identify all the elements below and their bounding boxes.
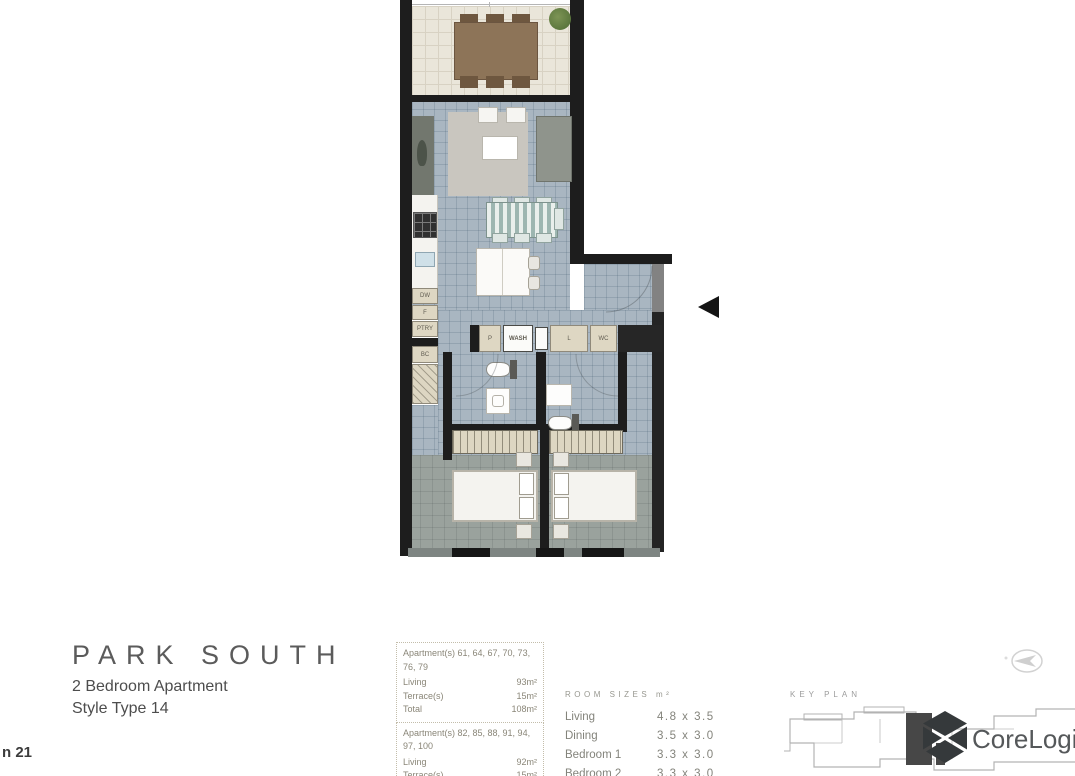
apartment-numbers: Apartment(s) 61, 64, 67, 70, 73, 76, 79 [403,647,537,674]
room-size-row: Bedroom 2 3.3 x 3.0 [565,765,743,776]
bathroom2-door-arc [576,354,618,396]
floor-plan: DW F PTRY BC P WASH L WC [0,0,1075,565]
room-dimensions: 3.3 x 3.0 [657,746,715,765]
info-row: Living 92m² [403,756,537,770]
info-label: Total [403,703,422,717]
room-sizes-heading: ROOM SIZES m² [565,690,743,699]
corelogic-logo-icon [920,710,970,766]
room-dimensions: 3.3 x 3.0 [657,765,715,776]
project-title: PARK SOUTH [72,640,346,671]
entry-arrow-icon [698,296,719,318]
apartment-info-block-2: Apartment(s) 82, 85, 88, 91, 94, 97, 100… [396,722,544,776]
info-value: 15m² [516,690,537,704]
room-dimensions: 4.8 x 3.5 [657,708,715,727]
info-row: Terrace(s) 15m² [403,769,537,776]
room-label: Dining [565,727,657,746]
room-sizes-table: ROOM SIZES m² Living 4.8 x 3.5 Dining 3.… [565,690,743,776]
bathroom1-door-arc [456,354,498,396]
room-label: Living [565,708,657,727]
apartment-info-column: Apartment(s) 61, 64, 67, 70, 73, 76, 79 … [396,642,544,776]
info-label: Terrace(s) [403,690,444,704]
info-row: Living 93m² [403,676,537,690]
door-swing-arcs [400,0,700,560]
compass-icon [1000,645,1050,677]
info-value: 108m² [511,703,537,717]
corner-plan-number: n 21 [2,744,32,761]
apartment-type: 2 Bedroom Apartment [72,678,346,696]
style-type: Style Type 14 [72,700,346,718]
info-value: 92m² [516,756,537,770]
room-label: Bedroom 2 [565,765,657,776]
info-value: 93m² [516,676,537,690]
room-size-row: Dining 3.5 x 3.0 [565,727,743,746]
info-row: Terrace(s) 15m² [403,690,537,704]
entry-door-arc [606,266,652,312]
info-label: Living [403,756,427,770]
info-value: 15m² [516,769,537,776]
key-plan-heading: KEY PLAN [790,690,861,699]
room-label: Bedroom 1 [565,746,657,765]
info-label: Terrace(s) [403,769,444,776]
room-size-row: Bedroom 1 3.3 x 3.0 [565,746,743,765]
floor-plan-page: DW F PTRY BC P WASH L WC [0,0,1075,776]
info-row: Total 108m² [403,703,537,717]
corelogic-wordmark: CoreLogic [972,724,1075,755]
room-dimensions: 3.5 x 3.0 [657,727,715,746]
room-size-row: Living 4.8 x 3.5 [565,708,743,727]
title-block: PARK SOUTH 2 Bedroom Apartment Style Typ… [72,640,346,718]
apartment-numbers: Apartment(s) 82, 85, 88, 91, 94, 97, 100 [403,727,537,754]
info-label: Living [403,676,427,690]
apartment-info-block-1: Apartment(s) 61, 64, 67, 70, 73, 76, 79 … [396,642,544,723]
